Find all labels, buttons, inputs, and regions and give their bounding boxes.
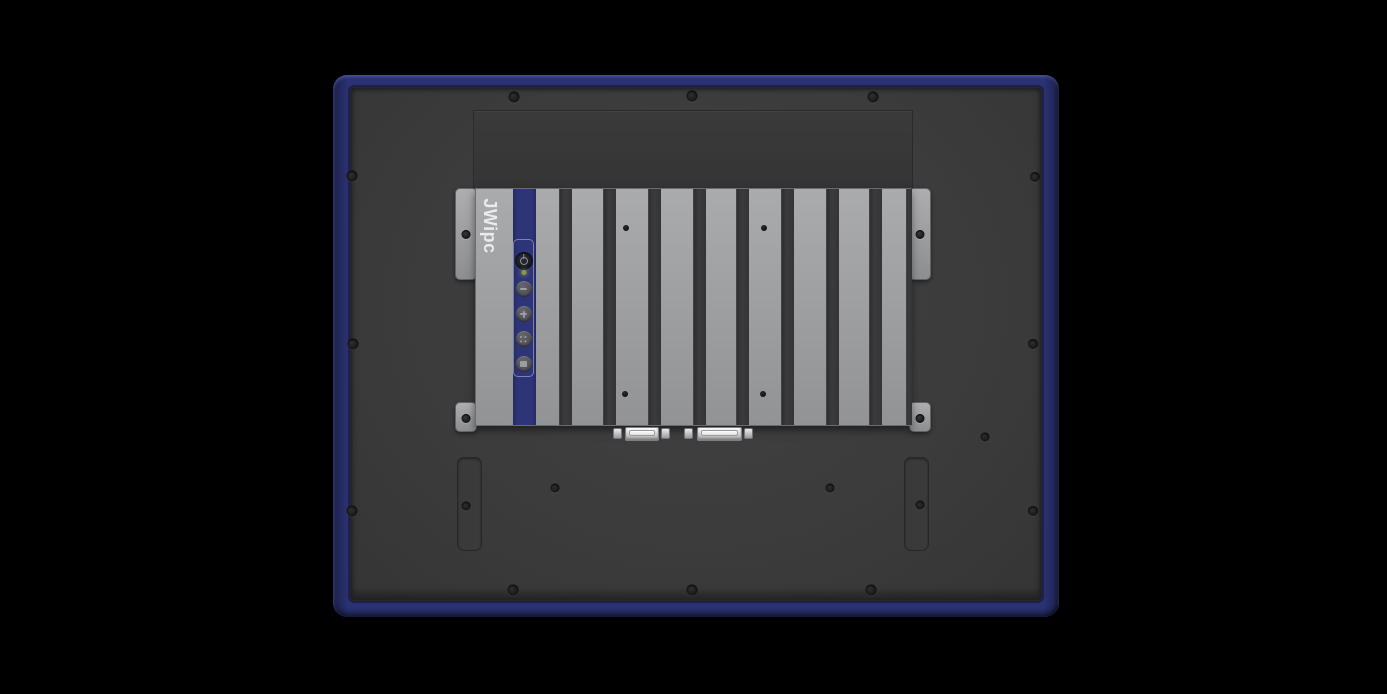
embedded-pc-module: JWipc	[475, 188, 911, 426]
panel-screw-hole	[1028, 506, 1038, 516]
panel-screw-hole	[981, 433, 990, 442]
heatsink-screw	[761, 225, 767, 231]
mounting-ear-bottom-right	[909, 402, 931, 432]
heatsink-fin-gap	[559, 189, 572, 425]
brightness-up-button	[516, 306, 532, 322]
panel-screw-hole	[866, 585, 877, 596]
serial-connector-post	[661, 428, 670, 439]
power-button	[515, 252, 533, 270]
heatsink-fin-gap	[736, 189, 749, 425]
panel-screw-hole	[347, 171, 358, 182]
serial-connector-post	[613, 428, 622, 439]
mounting-ear-top-left	[455, 188, 477, 280]
heatsink-fin-gap	[781, 189, 794, 425]
heatsink-fin-gap	[603, 189, 616, 425]
power-icon	[520, 257, 528, 265]
heatsink-screw	[623, 225, 629, 231]
ear-screw-hole	[462, 414, 471, 423]
minus-icon	[520, 288, 527, 290]
serial-connector	[625, 427, 659, 441]
panel-screw-hole	[347, 506, 358, 517]
panel-screw-hole	[868, 92, 879, 103]
slot-screw-hole	[916, 501, 925, 510]
heatsink-fin-gap	[869, 189, 882, 425]
panel-screw-hole	[826, 484, 835, 493]
top-mounting-plate	[473, 110, 913, 188]
power-led-icon	[521, 270, 526, 275]
slot-screw-hole	[462, 502, 471, 511]
vga-connector-post	[684, 428, 693, 439]
panel-screw-hole	[348, 339, 359, 350]
auto-button	[516, 356, 532, 372]
heatsink-fin-gap	[906, 189, 912, 425]
grid-icon	[520, 336, 527, 343]
panel-screw-hole	[1030, 172, 1040, 182]
ear-screw-hole	[916, 230, 925, 239]
ear-screw-hole	[462, 230, 471, 239]
plus-icon	[520, 311, 527, 318]
heatsink-fin-gap	[826, 189, 839, 425]
heatsink-fin-gap	[693, 189, 706, 425]
menu-button	[516, 331, 532, 347]
vga-connector-post	[744, 428, 753, 439]
panel-screw-hole	[687, 91, 698, 102]
panel-screw-hole	[551, 484, 560, 493]
heatsink-fin-gap	[648, 189, 661, 425]
product-render: JWipc	[0, 0, 1387, 694]
osd-control-panel	[513, 239, 534, 377]
square-icon	[520, 361, 527, 367]
brand-logo: JWipc	[478, 197, 502, 255]
panel-screw-hole	[687, 585, 698, 596]
panel-screw-hole	[1028, 339, 1038, 349]
panel-screw-hole	[508, 585, 519, 596]
heatsink-screw	[622, 391, 628, 397]
heatsink-screw	[760, 391, 766, 397]
panel-screw-hole	[509, 92, 520, 103]
mounting-ear-top-right	[909, 188, 931, 280]
vga-connector	[697, 427, 742, 441]
ear-screw-hole	[916, 414, 925, 423]
mounting-ear-bottom-left	[455, 402, 477, 432]
brightness-down-button	[516, 281, 532, 297]
